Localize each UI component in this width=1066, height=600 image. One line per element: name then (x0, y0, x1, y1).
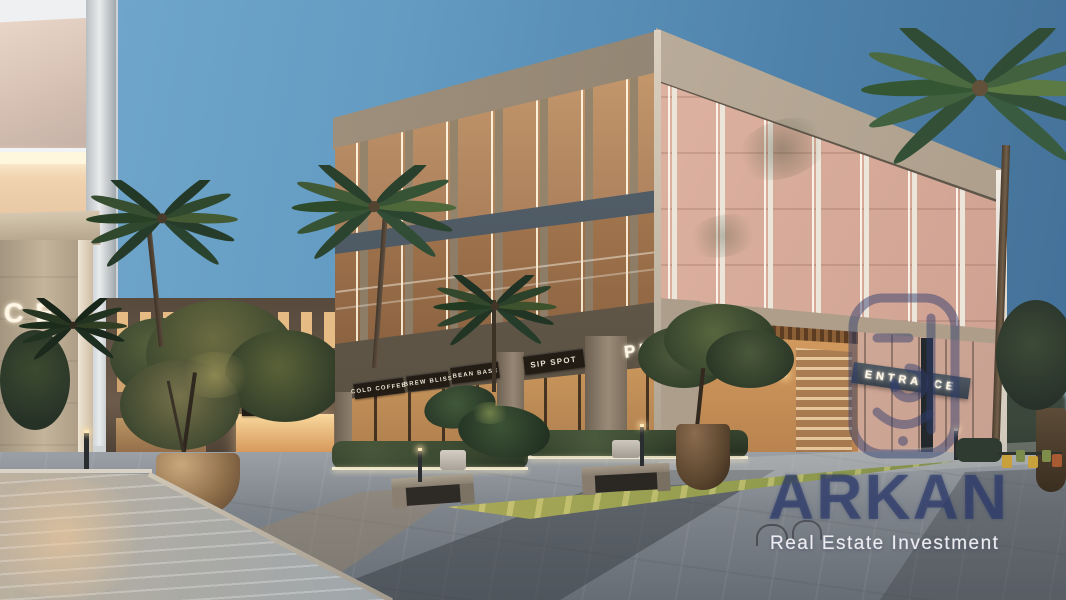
palm-tree-icon (430, 275, 560, 371)
bench (391, 473, 475, 509)
palm-tree-icon (288, 165, 460, 293)
outdoor-chair (1052, 454, 1062, 467)
palm-tree-icon (18, 298, 128, 382)
shrub-highlight (470, 402, 510, 424)
bollard-light (84, 430, 89, 470)
arkan-brand-text: ARKAN (768, 460, 1048, 534)
tree-foliage (996, 300, 1066, 410)
hedge-led-strip (332, 467, 528, 470)
water-step-edge (0, 469, 152, 473)
planter-tub (440, 450, 466, 470)
dusk-plaza-render: ENTRANCE ZEP TH CAFE CE COLD COFFEE BREW… (0, 0, 1066, 600)
tower-glass-upper (0, 8, 86, 148)
bollard-light (418, 448, 422, 482)
bench (581, 463, 670, 496)
storefront-sign-label: BREW BLISS (403, 375, 453, 388)
tree-foliage (706, 330, 794, 388)
planter-pot (676, 424, 730, 490)
bollard-light (640, 424, 644, 466)
planter-tub (612, 440, 640, 458)
arkan-tagline: Real Estate Investment (770, 533, 1030, 555)
arkan-logo-icon (843, 290, 965, 462)
storefront-sign-label: COLD COFFEE (351, 382, 408, 396)
palm-tree-icon (855, 28, 1066, 213)
palm-tree-icon (82, 180, 242, 298)
